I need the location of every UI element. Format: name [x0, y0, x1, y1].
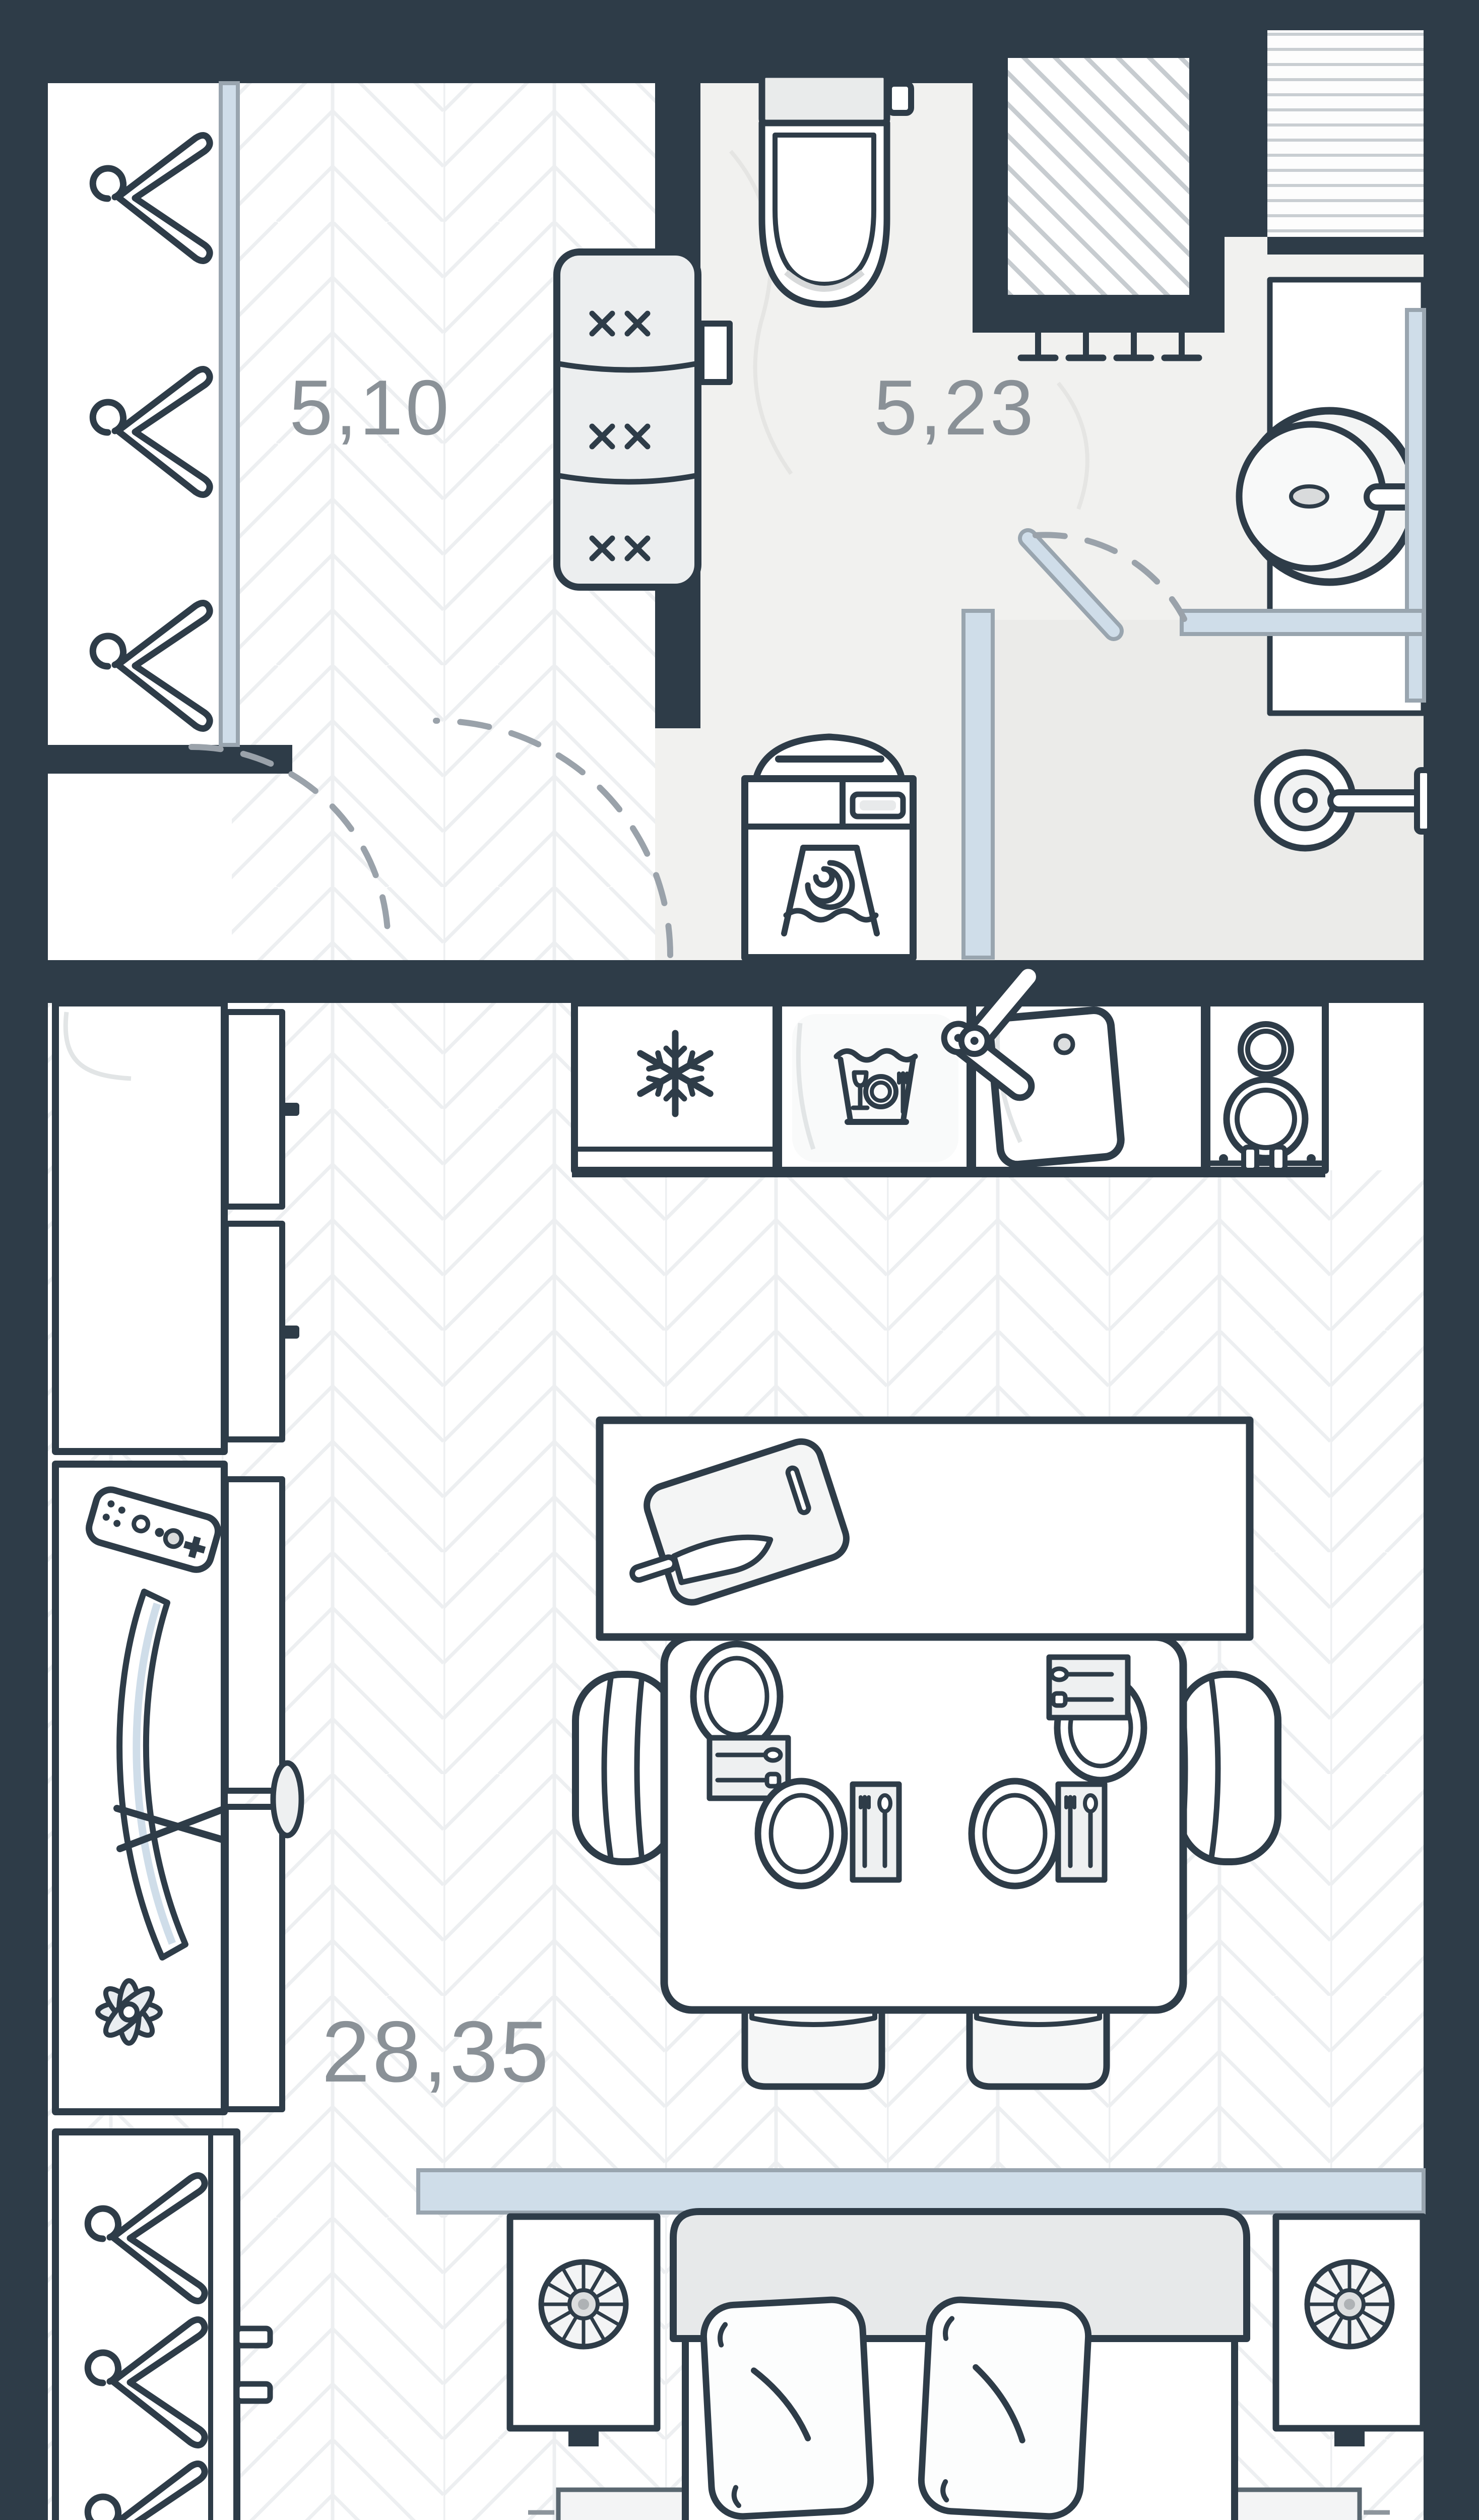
stove: [1207, 1003, 1325, 1170]
pillow: [702, 2298, 872, 2518]
area-label-hallway: 5,10: [289, 364, 452, 451]
pillow: [920, 2298, 1090, 2518]
floor-plan: 5,10 5,23 28,35: [0, 0, 1479, 2520]
tv-console: [55, 1464, 301, 2112]
bed: [673, 2212, 1247, 2520]
tall-cabinet: [55, 1003, 299, 1452]
rosette-icon: [541, 2262, 626, 2347]
fridge: [574, 1003, 776, 1170]
armchair: [575, 1674, 674, 1862]
bathroom-door-plate: [701, 324, 730, 382]
drawer-knob: [282, 1326, 299, 1339]
duct-shaft-hatch: [1008, 58, 1189, 295]
area-label-living: 28,35: [321, 2003, 551, 2100]
cutlery-icon: [853, 1784, 899, 1880]
hall-bench: [557, 252, 698, 587]
wardrobe: [55, 2132, 270, 2520]
shower-bar: [1330, 792, 1426, 809]
flower-icon: [98, 1981, 160, 2043]
floor-plan-page: 5,10 5,23 28,35: [0, 0, 1479, 2520]
headboard-shelf: [418, 2170, 1424, 2213]
drawer: [226, 1224, 282, 1439]
cabinet-handle: [273, 1763, 301, 1836]
vent-grille: [1267, 30, 1424, 237]
vanity-counter: [1239, 280, 1427, 713]
closet-sliding-door: [221, 83, 238, 745]
armchair: [1179, 1674, 1278, 1862]
wall-kitchen-band: [48, 960, 1424, 1003]
area-label-bathroom: 5,23: [874, 364, 1036, 451]
drawer: [226, 1012, 282, 1207]
drawer-knob: [282, 1103, 299, 1116]
dishwasher: [779, 1003, 970, 1170]
cabinet-door: [226, 1807, 282, 2109]
mirror: [1407, 310, 1424, 701]
cutlery-icon: [1049, 1657, 1128, 1718]
nightstand: [1276, 2217, 1423, 2446]
kitchen-island: [600, 1420, 1250, 1637]
door-handle: [237, 2328, 270, 2346]
shower-glass-top: [1182, 611, 1424, 634]
rosette-icon: [1307, 2262, 1392, 2347]
shower-glass-left: [963, 611, 993, 958]
washing-machine: [745, 737, 913, 958]
drain-icon: [1291, 486, 1327, 507]
cabinet-door: [226, 1479, 282, 1791]
cutlery-icon: [1058, 1784, 1105, 1880]
door-handle: [237, 2384, 270, 2401]
nightstand: [510, 2217, 657, 2446]
